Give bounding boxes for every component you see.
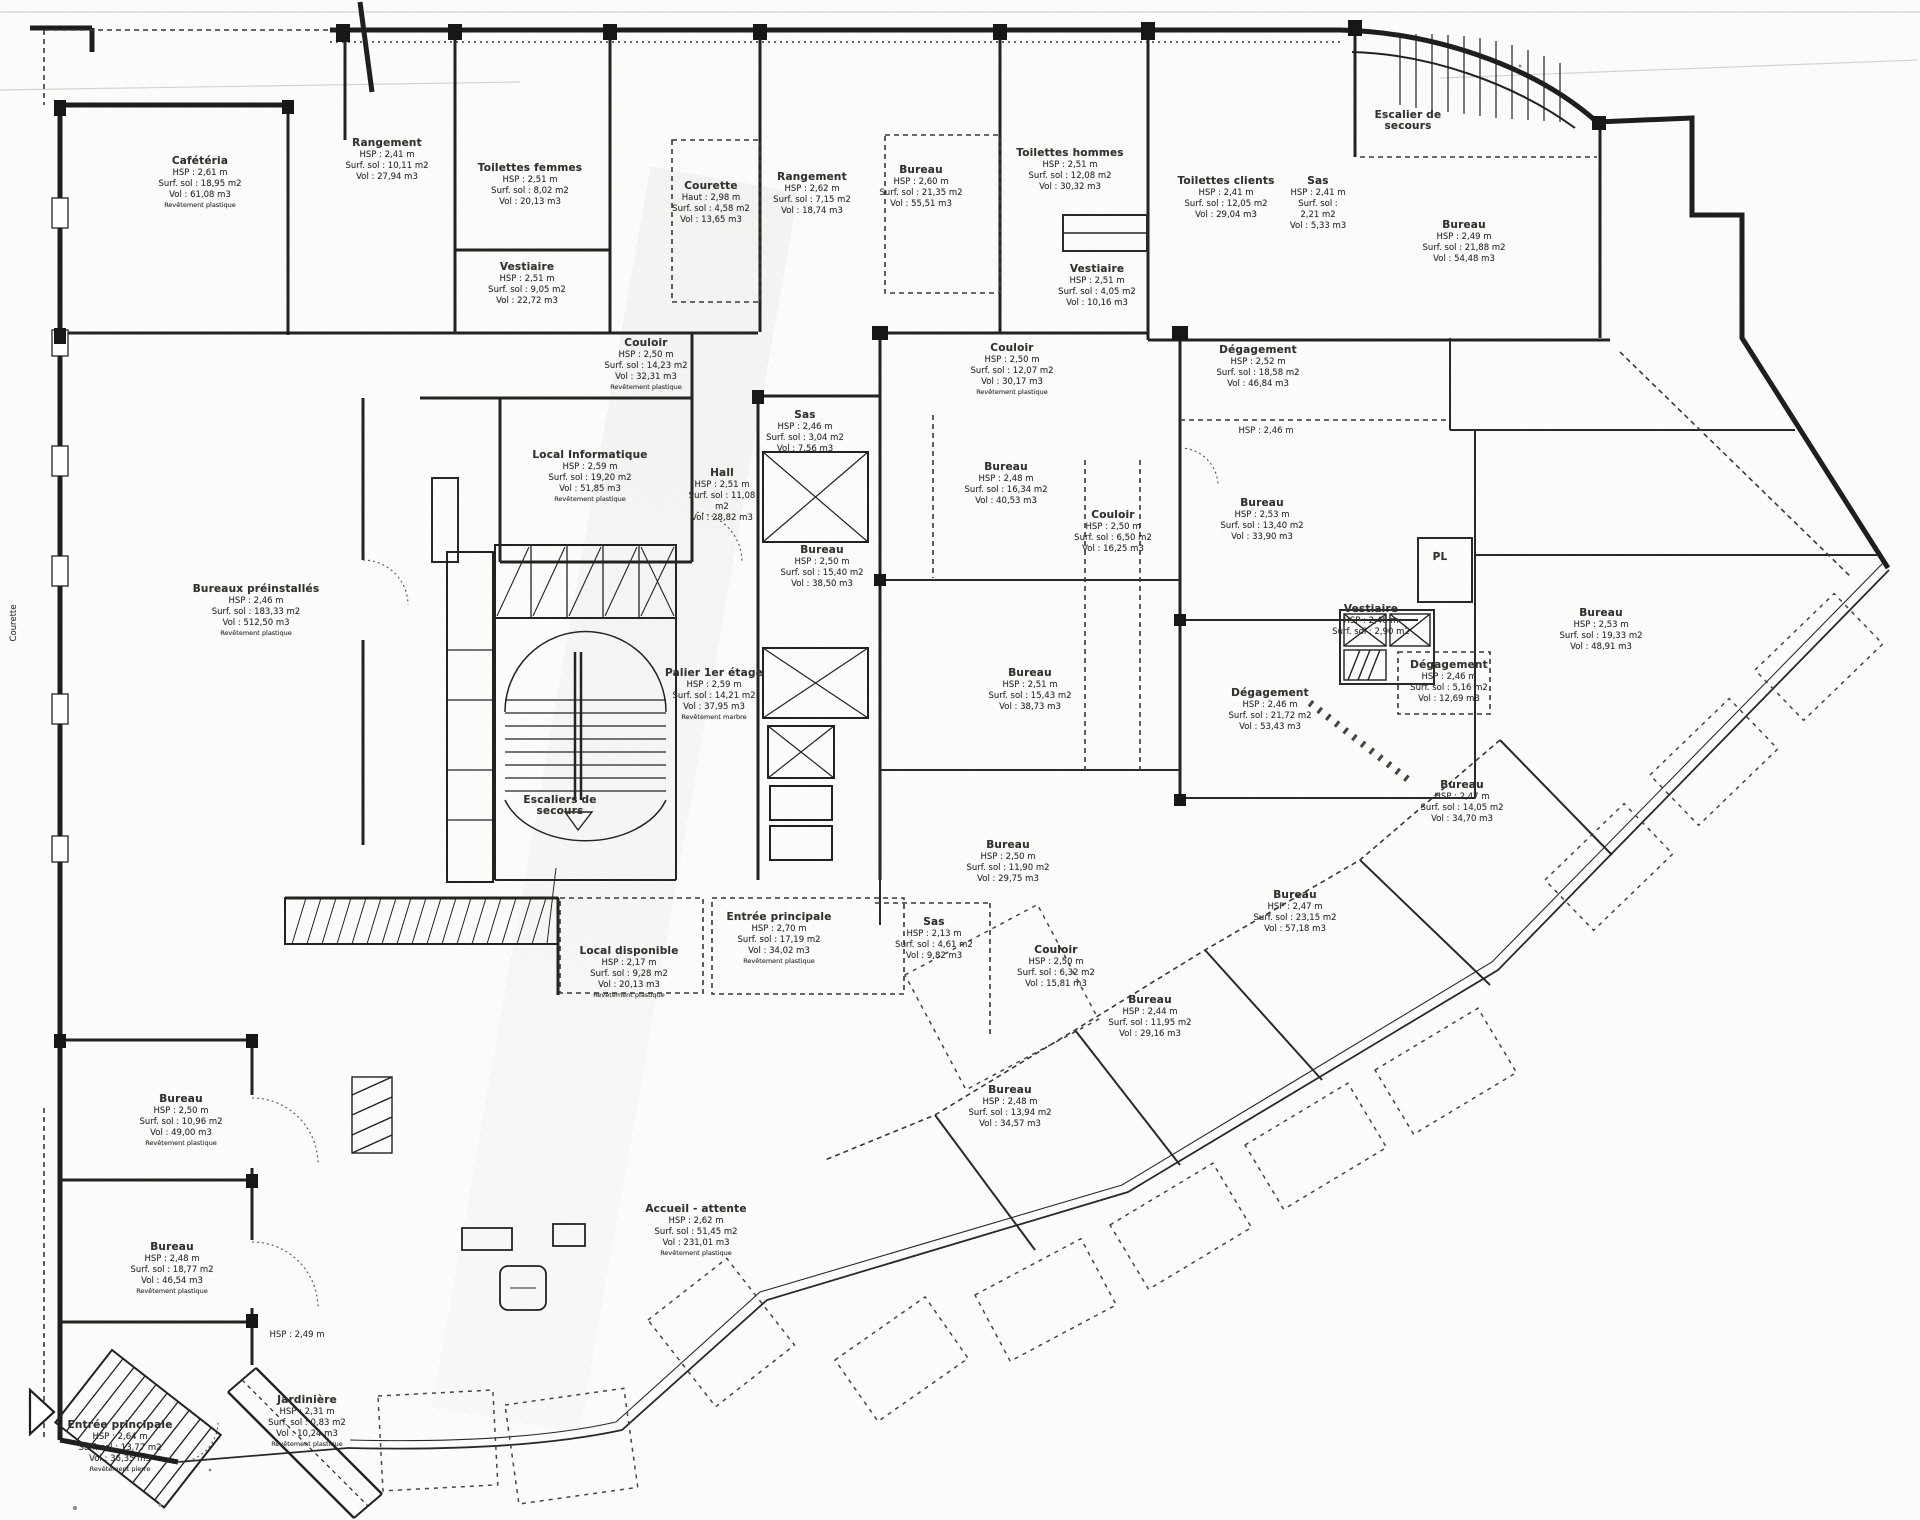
room-label-sas-1: SasHSP : 2,41 mSurf. sol : 2,21 m2Vol : …	[1288, 176, 1348, 232]
room-label-rangement-1: RangementHSP : 2,41 mSurf. sol : 10,11 m…	[332, 138, 442, 183]
room-stat: Vol : 15,81 m3	[1011, 979, 1101, 990]
room-stat: HSP : 2,46 m	[760, 422, 850, 433]
room-name: Dégagement	[1399, 660, 1499, 671]
room-name: Escaliers de secours	[505, 795, 615, 817]
room-stat: Vol : 30,32 m3	[1005, 182, 1135, 193]
room-stat: HSP : 2,17 m	[564, 958, 694, 969]
room-stat: Vol : 38,50 m3	[772, 579, 872, 590]
room-stat: Surf. sol : 15,40 m2	[772, 568, 872, 579]
room-stat: Vol : 49,00 m3	[121, 1128, 241, 1139]
room-name: PL	[1415, 552, 1465, 563]
room-stat: Surf. sol : 14,21 m2	[664, 691, 764, 702]
room-stat: Revêtement plastique	[957, 388, 1067, 396]
room-stat: HSP : 2,41 m	[1288, 188, 1348, 199]
room-label-bureau-d: BureauHSP : 2,44 mSurf. sol : 11,95 m2Vo…	[1100, 995, 1200, 1040]
room-name: Local Informatique	[515, 450, 665, 461]
room-stat: Surf. sol : 11,90 m2	[953, 863, 1063, 874]
room-name: Bureau	[1240, 890, 1350, 901]
room-stat: HSP : 2,51 m	[687, 480, 757, 491]
room-name: Bureau	[121, 1094, 241, 1105]
room-stat: HSP : 2,50 m	[591, 350, 701, 361]
room-label-escalier-secours: Escalier de secours	[1358, 110, 1458, 133]
room-stat: Surf. sol : 4,05 m2	[1052, 287, 1142, 298]
room-name: Couloir	[957, 343, 1067, 354]
room-name: Bureau	[1409, 220, 1519, 231]
room-stat: HSP : 2,41 m	[332, 150, 442, 161]
room-label-escaliers-secours: Escaliers de secours	[505, 795, 615, 818]
room-stat: Vol : 33,90 m3	[1207, 532, 1317, 543]
room-stat: HSP : 2,53 m	[1546, 620, 1656, 631]
room-stat: Surf. sol : 19,20 m2	[515, 473, 665, 484]
room-stat: Surf. sol : 9,28 m2	[564, 969, 694, 980]
room-stat: HSP : 2,60 m	[871, 177, 971, 188]
room-stat: Vol : 29,16 m3	[1100, 1029, 1200, 1040]
room-stat: HSP : 2,51 m	[1052, 276, 1142, 287]
room-stat: Surf. sol : 18,77 m2	[112, 1265, 232, 1276]
room-name: Dégagement	[1210, 688, 1330, 699]
room-stat: HSP : 2,50 m	[121, 1106, 241, 1117]
room-stat: Vol : 40,53 m3	[951, 496, 1061, 507]
room-name: Bureau	[953, 840, 1063, 851]
room-name: Escalier de secours	[1358, 110, 1458, 132]
room-label-courette-1: CouretteHaut : 2,98 mSurf. sol : 4,58 m2…	[669, 181, 754, 226]
room-stat: HSP : 2,51 m	[468, 175, 593, 186]
room-stat: HSP : 2,47 m	[1407, 792, 1517, 803]
room-stat: Vol : 5,33 m3	[1288, 221, 1348, 232]
room-label-bureau-r2: BureauHSP : 2,47 mSurf. sol : 14,05 m2Vo…	[1407, 780, 1517, 825]
room-name: Toilettes femmes	[468, 163, 593, 174]
room-label-cafeteria: CafétériaHSP : 2,61 mSurf. sol : 18,95 m…	[135, 156, 265, 209]
room-stat: HSP : 2,48 m	[951, 474, 1061, 485]
room-stat: HSP : 2,70 m	[714, 924, 844, 935]
room-stat: HSP : 2,44 m	[1100, 1007, 1200, 1018]
room-stat: Surf. sol : 12,08 m2	[1005, 171, 1135, 182]
room-stat: Vol : 10,16 m3	[1052, 298, 1142, 309]
room-stat: Vol : 46,54 m3	[112, 1276, 232, 1287]
room-stat: Surf. sol : 11,95 m2	[1100, 1018, 1200, 1029]
room-label-rangement-2: RangementHSP : 2,62 mSurf. sol : 7,15 m2…	[762, 172, 862, 217]
room-name: Hall	[687, 468, 757, 479]
room-stat: HSP : 2,52 m	[1198, 357, 1318, 368]
room-stat: Surf. sol : 183,33 m2	[181, 607, 331, 618]
room-name: Couloir	[591, 338, 701, 349]
room-label-toilettes-clients: Toilettes clientsHSP : 2,41 mSurf. sol :…	[1166, 176, 1286, 221]
room-stat: HSP : 2,46 m	[1399, 672, 1499, 683]
room-label-sas-3: SasHSP : 2,13 mSurf. sol : 4,61 m2Vol : …	[889, 917, 979, 962]
room-stat: Revêtement plastique	[252, 1440, 362, 1448]
room-label-couloir-2: CouloirHSP : 2,50 mSurf. sol : 12,07 m2V…	[957, 343, 1067, 396]
room-label-degagement-3: DégagementHSP : 2,46 mSurf. sol : 21,72 …	[1210, 688, 1330, 733]
room-stat: Surf. sol : 2,21 m2	[1288, 199, 1348, 221]
room-stat: Vol : 20,13 m3	[468, 197, 593, 208]
room-label-sas-2: SasHSP : 2,46 mSurf. sol : 3,04 m2Vol : …	[760, 410, 850, 455]
room-stat: Surf. sol : 4,61 m2	[889, 940, 979, 951]
room-stat: HSP : 2,50 m	[957, 355, 1067, 366]
room-name: Bureau	[871, 165, 971, 176]
room-stat: Vol : 34,70 m3	[1407, 814, 1517, 825]
room-label-toilettes-femmes: Toilettes femmesHSP : 2,51 mSurf. sol : …	[468, 163, 593, 208]
room-stat: Revêtement plastique	[515, 495, 665, 503]
room-stat: Surf. sol : 9,05 m2	[472, 285, 582, 296]
room-stat: Surf. sol : 10,11 m2	[332, 161, 442, 172]
room-stat: HSP : 2,50 m	[1073, 522, 1153, 533]
room-stat: Surf. sol : 18,95 m2	[135, 179, 265, 190]
room-stat: HSP : 2,48 m	[112, 1254, 232, 1265]
room-name: Sas	[889, 917, 979, 928]
room-label-bureau-r1: BureauHSP : 2,53 mSurf. sol : 19,33 m2Vo…	[1546, 608, 1656, 653]
room-name: Cafétéria	[135, 156, 265, 167]
room-label-local-informatique: Local InformatiqueHSP : 2,59 mSurf. sol …	[515, 450, 665, 503]
room-stat: Surf. sol : 12,07 m2	[957, 366, 1067, 377]
room-stat: Vol : 37,95 m3	[664, 702, 764, 713]
room-stat: Vol : 61,08 m3	[135, 190, 265, 201]
room-label-vestiaire-3: VestiaireHSP : 2,46 mSurf. sol : 2,90 m2	[1331, 604, 1411, 638]
annotation-hsp-note-1: HSP : 2,46 m	[1238, 426, 1293, 436]
room-stat: Surf. sol : 2,90 m2	[1331, 627, 1411, 638]
room-name: Sas	[1288, 176, 1348, 187]
room-label-couloir-1: CouloirHSP : 2,50 mSurf. sol : 14,23 m2V…	[591, 338, 701, 391]
room-stat: Vol : 32,31 m3	[591, 372, 701, 383]
room-stat: Surf. sol : 16,34 m2	[951, 485, 1061, 496]
room-stat: Vol : 9,82 m3	[889, 951, 979, 962]
room-stat: Vol : 20,13 m3	[564, 980, 694, 991]
room-stat: HSP : 2,51 m	[1005, 160, 1135, 171]
room-stat: Surf. sol : 17,19 m2	[714, 935, 844, 946]
annotation-courette-side: Courette	[9, 605, 19, 642]
room-stat: Vol : 38,73 m3	[975, 702, 1085, 713]
room-stat: HSP : 2,51 m	[472, 274, 582, 285]
room-stat: Vol : 55,51 m3	[871, 199, 971, 210]
room-stat: HSP : 2,46 m	[181, 596, 331, 607]
room-stat: Surf. sol : 14,05 m2	[1407, 803, 1517, 814]
room-stat: Vol : 29,75 m3	[953, 874, 1063, 885]
room-stat: Surf. sol : 4,58 m2	[669, 204, 754, 215]
room-stat: Surf. sol : 51,45 m2	[631, 1227, 761, 1238]
room-label-bureau-b: BureauHSP : 2,51 mSurf. sol : 15,43 m2Vo…	[975, 668, 1085, 713]
room-label-pl: PL	[1415, 552, 1465, 564]
room-label-couloir-4: CouloirHSP : 2,50 mSurf. sol : 6,32 m2Vo…	[1011, 945, 1101, 990]
room-name: Bureau	[1207, 498, 1317, 509]
room-label-accueil: Accueil - attenteHSP : 2,62 mSurf. sol :…	[631, 1204, 761, 1257]
room-name: Bureau	[1407, 780, 1517, 791]
room-label-jardiniere: JardinièreHSP : 2,31 mSurf. sol : 0,83 m…	[252, 1395, 362, 1448]
room-stat: HSP : 2,48 m	[960, 1097, 1060, 1108]
room-stat: HSP : 2,59 m	[515, 462, 665, 473]
room-stat: Surf. sol : 14,23 m2	[591, 361, 701, 372]
room-stat: HSP : 2,62 m	[631, 1216, 761, 1227]
room-stat: Vol : 27,94 m3	[332, 172, 442, 183]
room-label-toilettes-hommes: Toilettes hommesHSP : 2,51 mSurf. sol : …	[1005, 148, 1135, 193]
room-stat: HSP : 2,59 m	[664, 680, 764, 691]
room-label-entree-2: Entrée principaleHSP : 2,64 mSurf. sol :…	[58, 1420, 183, 1473]
room-stat: Vol : 10,24 m3	[252, 1429, 362, 1440]
room-stat: Revêtement plastique	[591, 383, 701, 391]
room-name: Bureau	[772, 545, 872, 556]
room-stat: Vol : 231,01 m3	[631, 1238, 761, 1249]
room-label-entree-1: Entrée principaleHSP : 2,70 mSurf. sol :…	[714, 912, 844, 965]
room-stat: Vol : 34,57 m3	[960, 1119, 1060, 1130]
room-labels: CafétériaHSP : 2,61 mSurf. sol : 18,95 m…	[0, 0, 1920, 1520]
room-name: Sas	[760, 410, 850, 421]
room-name: Courette	[669, 181, 754, 192]
room-name: Bureau	[960, 1085, 1060, 1096]
room-name: Entrée principale	[714, 912, 844, 923]
room-name: Bureau	[951, 462, 1061, 473]
room-stat: Surf. sol : 13,94 m2	[960, 1108, 1060, 1119]
room-label-bureau-mid: BureauHSP : 2,50 mSurf. sol : 15,40 m2Vo…	[772, 545, 872, 590]
room-stat: Vol : 30,17 m3	[957, 377, 1067, 388]
room-label-vestiaire-2: VestiaireHSP : 2,51 mSurf. sol : 4,05 m2…	[1052, 264, 1142, 309]
room-stat: Revêtement pierre	[58, 1465, 183, 1473]
room-label-bureau-bl1: BureauHSP : 2,50 mSurf. sol : 10,96 m2Vo…	[121, 1094, 241, 1147]
room-stat: HSP : 2,41 m	[1166, 188, 1286, 199]
room-stat: HSP : 2,49 m	[1409, 232, 1519, 243]
room-stat: Vol : 18,74 m3	[762, 206, 862, 217]
room-stat: Surf. sol : 0,83 m2	[252, 1418, 362, 1429]
room-stat: Surf. sol : 6,50 m2	[1073, 533, 1153, 544]
room-stat: Vol : 48,91 m3	[1546, 642, 1656, 653]
room-stat: HSP : 2,50 m	[953, 852, 1063, 863]
room-label-bureaux-preinstalles: Bureaux préinstallésHSP : 2,46 mSurf. so…	[181, 584, 331, 637]
room-label-bureau-e: BureauHSP : 2,48 mSurf. sol : 13,94 m2Vo…	[960, 1085, 1060, 1130]
room-stat: HSP : 2,47 m	[1240, 902, 1350, 913]
room-stat: Surf. sol : 6,32 m2	[1011, 968, 1101, 979]
room-name: Bureau	[112, 1242, 232, 1253]
room-label-bureau-f: BureauHSP : 2,50 mSurf. sol : 11,90 m2Vo…	[953, 840, 1063, 885]
room-stat: HSP : 2,62 m	[762, 184, 862, 195]
room-name: Couloir	[1073, 510, 1153, 521]
room-name: Vestiaire	[1331, 604, 1411, 615]
room-stat: Revêtement plastique	[181, 629, 331, 637]
room-stat: Surf. sol : 19,33 m2	[1546, 631, 1656, 642]
room-stat: Surf. sol : 21,88 m2	[1409, 243, 1519, 254]
room-stat: Vol : 53,43 m3	[1210, 722, 1330, 733]
room-stat: Surf. sol : 13,77 m2	[58, 1443, 183, 1454]
room-stat: HSP : 2,46 m	[1331, 616, 1411, 627]
room-name: Rangement	[762, 172, 862, 183]
room-label-degagement-2: DégagementHSP : 2,46 mSurf. sol : 5,16 m…	[1399, 660, 1499, 705]
room-stat: HSP : 2,53 m	[1207, 510, 1317, 521]
room-stat: Vol : 54,48 m3	[1409, 254, 1519, 265]
room-stat: HSP : 2,51 m	[975, 680, 1085, 691]
room-stat: Surf. sol : 5,16 m2	[1399, 683, 1499, 694]
room-label-bureau-t1: BureauHSP : 2,60 mSurf. sol : 21,35 m2Vo…	[871, 165, 971, 210]
room-stat: Surf. sol : 15,43 m2	[975, 691, 1085, 702]
room-name: Bureau	[1100, 995, 1200, 1006]
room-name: Palier 1er étage	[664, 668, 764, 679]
room-stat: Revêtement plastique	[631, 1249, 761, 1257]
room-stat: Vol : 512,50 m3	[181, 618, 331, 629]
room-stat: Vol : 46,84 m3	[1198, 379, 1318, 390]
room-stat: Revêtement plastique	[564, 991, 694, 999]
room-stat: HSP : 2,64 m	[58, 1432, 183, 1443]
room-name: Jardinière	[252, 1395, 362, 1406]
room-label-vestiaire-1: VestiaireHSP : 2,51 mSurf. sol : 9,05 m2…	[472, 262, 582, 307]
room-stat: Revêtement plastique	[112, 1287, 232, 1295]
room-name: Accueil - attente	[631, 1204, 761, 1215]
room-stat: Surf. sol : 13,40 m2	[1207, 521, 1317, 532]
room-stat: HSP : 2,13 m	[889, 929, 979, 940]
room-stat: Vol : 36,35 m3	[58, 1454, 183, 1465]
room-name: Local disponible	[564, 946, 694, 957]
room-name: Vestiaire	[1052, 264, 1142, 275]
room-stat: HSP : 2,61 m	[135, 168, 265, 179]
room-stat: Vol : 16,25 m3	[1073, 544, 1153, 555]
room-name: Rangement	[332, 138, 442, 149]
room-name: Toilettes clients	[1166, 176, 1286, 187]
room-name: Dégagement	[1198, 345, 1318, 356]
room-name: Bureau	[1546, 608, 1656, 619]
room-label-hall: HallHSP : 2,51 mSurf. sol : 11,08 m2Vol …	[687, 468, 757, 524]
room-label-degagement-1: DégagementHSP : 2,52 mSurf. sol : 18,58 …	[1198, 345, 1318, 390]
room-stat: Vol : 29,04 m3	[1166, 210, 1286, 221]
room-stat: Surf. sol : 18,58 m2	[1198, 368, 1318, 379]
room-label-bureau-bl2: BureauHSP : 2,48 mSurf. sol : 18,77 m2Vo…	[112, 1242, 232, 1295]
room-label-bureau-r3: BureauHSP : 2,47 mSurf. sol : 23,15 m2Vo…	[1240, 890, 1350, 935]
room-stat: Revêtement plastique	[714, 957, 844, 965]
room-stat: HSP : 2,31 m	[252, 1407, 362, 1418]
annotation-hsp-note-2: HSP : 2,49 m	[269, 1330, 324, 1340]
room-stat: Surf. sol : 3,04 m2	[760, 433, 850, 444]
room-stat: Vol : 7,56 m3	[760, 444, 850, 455]
room-label-couloir-3: CouloirHSP : 2,50 mSurf. sol : 6,50 m2Vo…	[1073, 510, 1153, 555]
room-stat: Vol : 57,18 m3	[1240, 924, 1350, 935]
room-stat: Revêtement marbre	[664, 713, 764, 721]
room-stat: Vol : 22,72 m3	[472, 296, 582, 307]
room-stat: Surf. sol : 11,08 m2	[687, 491, 757, 513]
room-stat: HSP : 2,50 m	[772, 557, 872, 568]
room-label-palier: Palier 1er étageHSP : 2,59 mSurf. sol : …	[664, 668, 764, 721]
room-stat: HSP : 2,50 m	[1011, 957, 1101, 968]
room-stat: Revêtement plastique	[121, 1139, 241, 1147]
room-name: Bureaux préinstallés	[181, 584, 331, 595]
room-label-local-disponible: Local disponibleHSP : 2,17 mSurf. sol : …	[564, 946, 694, 999]
room-stat: Vol : 34,02 m3	[714, 946, 844, 957]
room-stat: HSP : 2,46 m	[1210, 700, 1330, 711]
room-name: Toilettes hommes	[1005, 148, 1135, 159]
room-stat: Vol : 28,82 m3	[687, 513, 757, 524]
room-stat: Surf. sol : 21,35 m2	[871, 188, 971, 199]
room-stat: Vol : 51,85 m3	[515, 484, 665, 495]
room-stat: Surf. sol : 7,15 m2	[762, 195, 862, 206]
room-stat: Vol : 12,69 m3	[1399, 694, 1499, 705]
room-name: Bureau	[975, 668, 1085, 679]
room-stat: Surf. sol : 10,96 m2	[121, 1117, 241, 1128]
floorplan-page: CafétériaHSP : 2,61 mSurf. sol : 18,95 m…	[0, 0, 1920, 1520]
room-label-bureau-c2: BureauHSP : 2,53 mSurf. sol : 13,40 m2Vo…	[1207, 498, 1317, 543]
room-name: Entrée principale	[58, 1420, 183, 1431]
room-stat: Surf. sol : 12,05 m2	[1166, 199, 1286, 210]
room-stat: Revêtement plastique	[135, 201, 265, 209]
room-name: Vestiaire	[472, 262, 582, 273]
room-stat: Surf. sol : 8,02 m2	[468, 186, 593, 197]
room-label-bureau-a: BureauHSP : 2,48 mSurf. sol : 16,34 m2Vo…	[951, 462, 1061, 507]
room-stat: Haut : 2,98 m	[669, 193, 754, 204]
room-stat: Vol : 13,65 m3	[669, 215, 754, 226]
room-name: Couloir	[1011, 945, 1101, 956]
room-label-bureau-t2: BureauHSP : 2,49 mSurf. sol : 21,88 m2Vo…	[1409, 220, 1519, 265]
room-stat: Surf. sol : 23,15 m2	[1240, 913, 1350, 924]
room-stat: Surf. sol : 21,72 m2	[1210, 711, 1330, 722]
